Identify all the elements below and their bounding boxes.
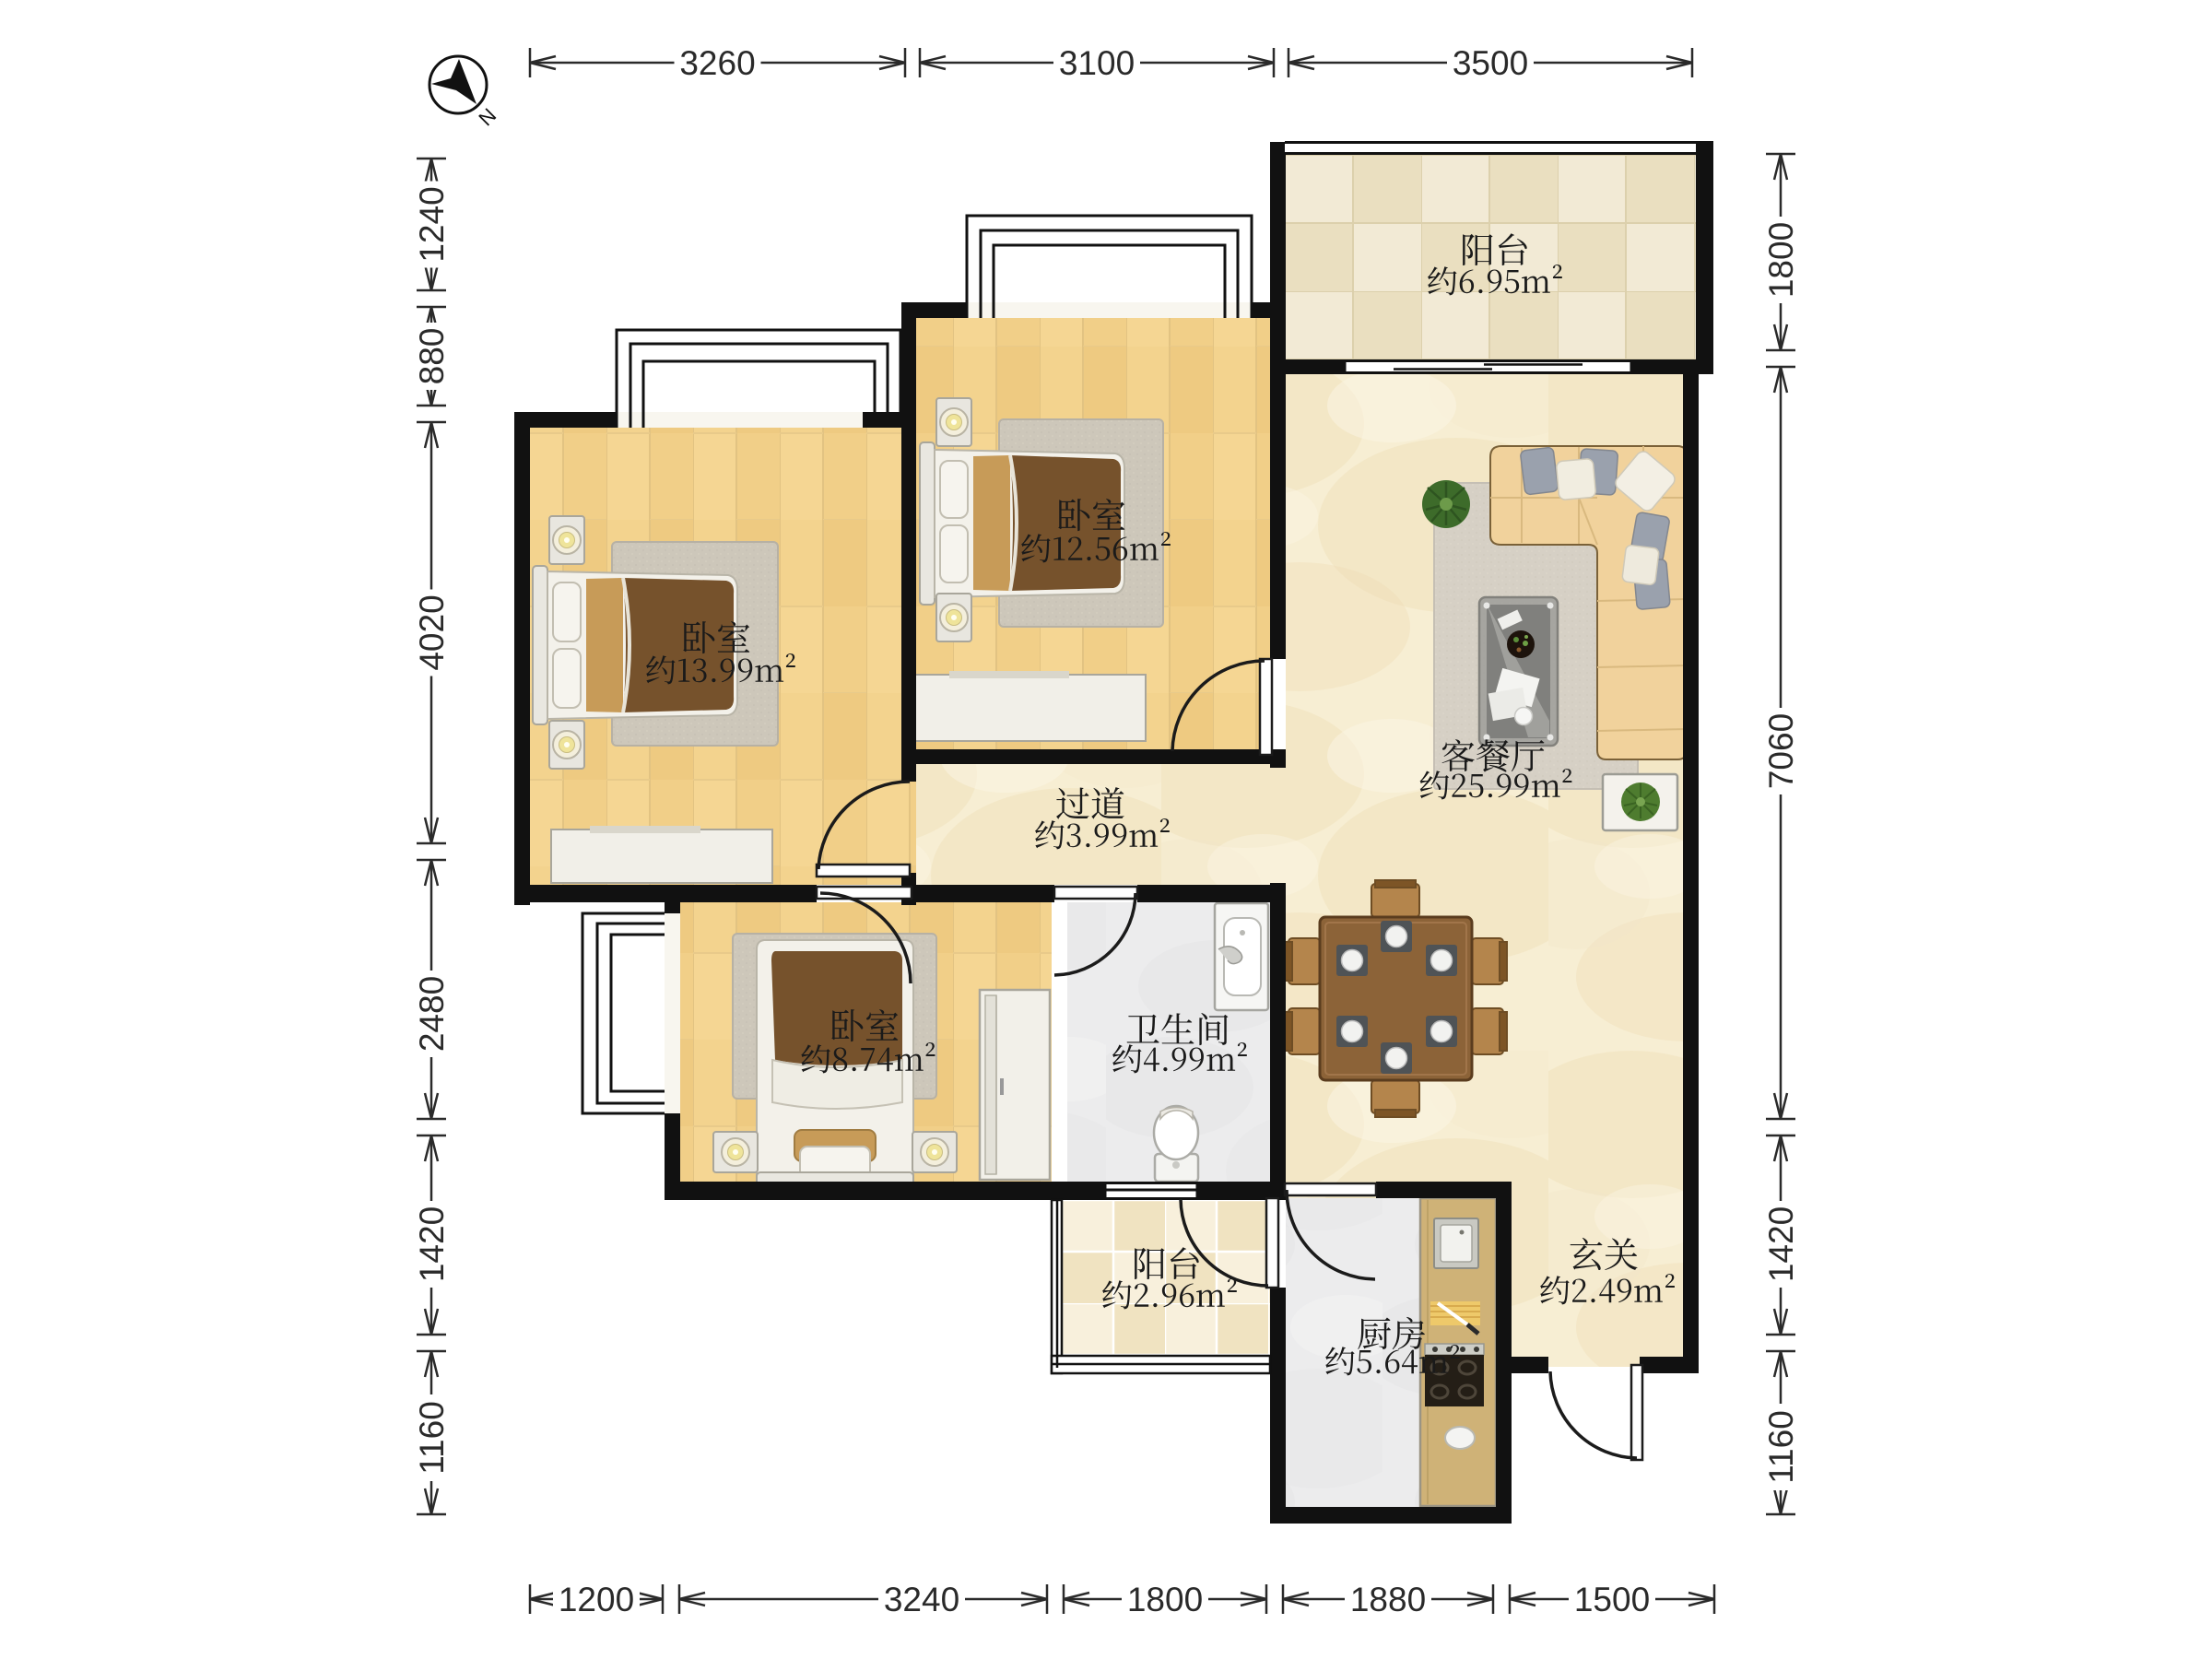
svg-text:1160: 1160 <box>1762 1410 1800 1484</box>
svg-text:1160: 1160 <box>413 1401 451 1475</box>
svg-text:3500: 3500 <box>1453 44 1528 82</box>
svg-text:1800: 1800 <box>1762 222 1800 298</box>
svg-text:1420: 1420 <box>1762 1206 1800 1282</box>
svg-text:4020: 4020 <box>413 594 451 670</box>
svg-text:7060: 7060 <box>1762 713 1800 789</box>
svg-text:2480: 2480 <box>413 976 451 1052</box>
svg-text:880: 880 <box>413 328 451 385</box>
svg-text:3240: 3240 <box>884 1581 959 1618</box>
svg-text:3100: 3100 <box>1059 44 1135 82</box>
svg-text:1500: 1500 <box>1574 1581 1650 1618</box>
svg-text:1800: 1800 <box>1127 1581 1203 1618</box>
svg-text:1880: 1880 <box>1350 1581 1426 1618</box>
svg-text:3260: 3260 <box>679 44 755 82</box>
svg-text:1240: 1240 <box>413 186 451 262</box>
svg-text:1200: 1200 <box>559 1581 634 1618</box>
svg-text:1420: 1420 <box>413 1206 451 1282</box>
